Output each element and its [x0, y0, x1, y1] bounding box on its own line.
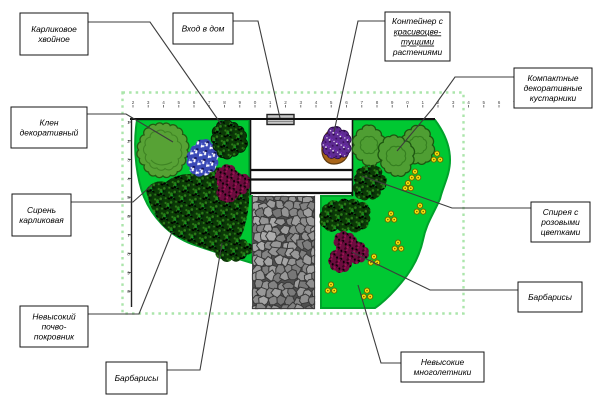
svg-text:6: 6 [193, 100, 196, 105]
svg-text:3: 3 [300, 100, 303, 105]
svg-text:Клен: Клен [40, 117, 59, 127]
svg-text:3: 3 [147, 100, 150, 105]
svg-text:1: 1 [422, 100, 425, 105]
svg-text:красивоцве-: красивоцве- [394, 26, 442, 36]
svg-text:кустарники: кустарники [530, 93, 577, 103]
svg-text:почво-: почво- [42, 322, 67, 332]
svg-text:Сирень: Сирень [27, 205, 56, 215]
svg-text:8: 8 [127, 252, 130, 257]
svg-text:1: 1 [127, 120, 130, 125]
svg-text:7: 7 [208, 100, 211, 105]
svg-text:декоративный: декоративный [20, 128, 79, 138]
svg-text:1: 1 [269, 100, 272, 105]
svg-text:8: 8 [376, 100, 379, 105]
svg-text:покровник: покровник [34, 332, 75, 342]
svg-text:2: 2 [284, 100, 287, 105]
svg-text:цветками: цветками [541, 227, 581, 237]
svg-text:2: 2 [127, 139, 130, 144]
svg-text:многолетники: многолетники [414, 367, 472, 377]
svg-text:карликовая: карликовая [19, 215, 64, 225]
svg-text:9: 9 [239, 100, 242, 105]
svg-text:Барбарисы: Барбарисы [115, 373, 159, 383]
svg-text:4: 4 [127, 176, 130, 181]
svg-text:5: 5 [178, 100, 181, 105]
svg-text:Карликовое: Карликовое [31, 24, 77, 34]
svg-text:Спирея с: Спирея с [543, 207, 579, 217]
svg-text:8: 8 [223, 100, 226, 105]
svg-text:4: 4 [162, 100, 165, 105]
svg-text:4: 4 [315, 100, 318, 105]
svg-text:тущими: тущими [401, 37, 435, 47]
svg-text:6: 6 [498, 100, 501, 105]
svg-text:7: 7 [127, 233, 130, 238]
svg-text:5: 5 [483, 100, 486, 105]
svg-text:6: 6 [345, 100, 348, 105]
svg-text:3: 3 [127, 158, 130, 163]
svg-text:5: 5 [127, 195, 130, 200]
svg-text:розовыми: розовыми [540, 217, 580, 227]
svg-text:9: 9 [391, 100, 394, 105]
svg-text:декоративные: декоративные [524, 83, 583, 93]
svg-text:0: 0 [127, 289, 130, 294]
svg-text:7: 7 [361, 100, 364, 105]
svg-text:Невысокие: Невысокие [421, 357, 465, 367]
svg-text:6: 6 [127, 214, 130, 219]
svg-text:растениями: растениями [392, 47, 443, 57]
svg-text:Компактные: Компактные [527, 73, 578, 83]
svg-text:Барбарисы: Барбарисы [528, 292, 572, 302]
svg-text:0: 0 [254, 100, 257, 105]
svg-text:5: 5 [330, 100, 333, 105]
svg-text:3: 3 [452, 100, 455, 105]
svg-text:0: 0 [406, 100, 409, 105]
svg-text:9: 9 [127, 270, 130, 275]
svg-text:2: 2 [132, 100, 135, 105]
svg-text:4: 4 [467, 100, 470, 105]
svg-text:Контейнер с: Контейнер с [392, 16, 444, 26]
svg-text:Невысокий: Невысокий [32, 311, 76, 321]
svg-text:хвойное: хвойное [37, 34, 70, 44]
svg-text:Вход в дом: Вход в дом [182, 24, 225, 34]
